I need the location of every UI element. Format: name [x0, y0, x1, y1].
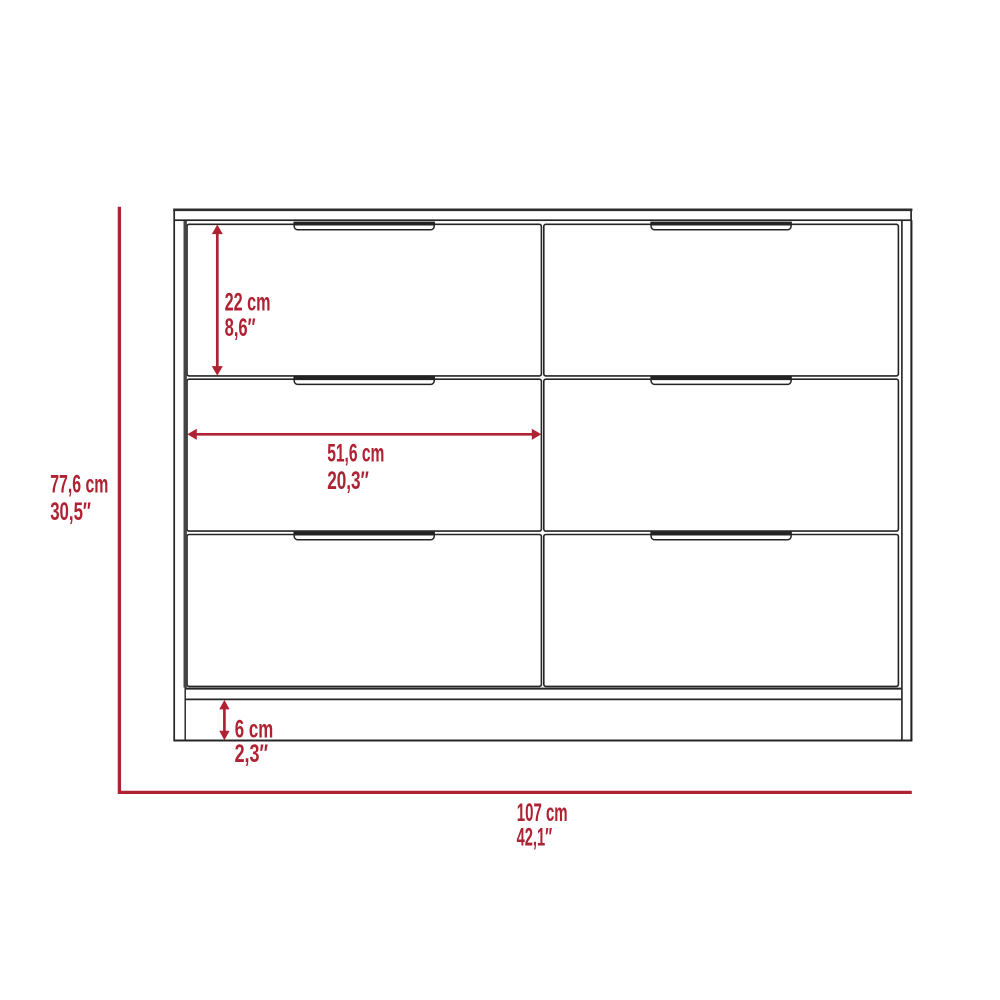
svg-text:42,1″: 42,1″ [517, 824, 553, 852]
svg-text:22 cm: 22 cm [225, 288, 271, 316]
svg-text:8,6″: 8,6″ [225, 314, 256, 342]
svg-text:77,6 cm: 77,6 cm [50, 471, 108, 499]
svg-text:51,6 cm: 51,6 cm [327, 439, 384, 467]
svg-text:30,5″: 30,5″ [50, 498, 91, 526]
svg-text:107 cm: 107 cm [517, 799, 568, 827]
svg-text:2,3″: 2,3″ [235, 740, 269, 768]
svg-text:20,3″: 20,3″ [327, 467, 369, 495]
